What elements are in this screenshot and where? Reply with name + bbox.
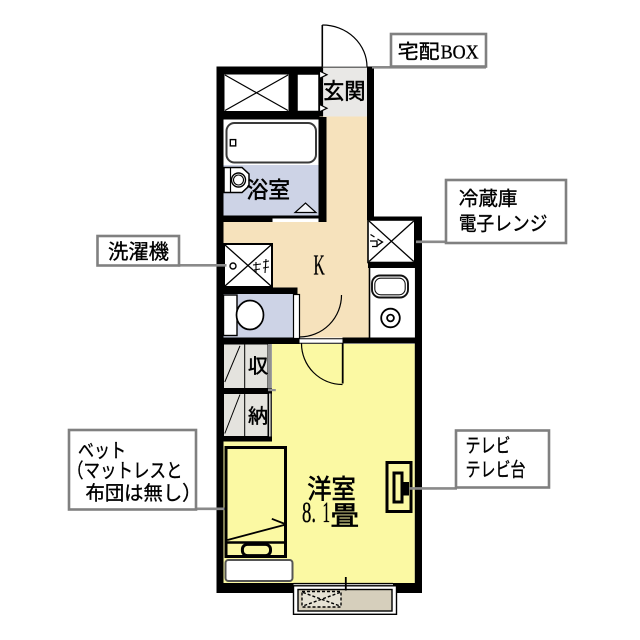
- svg-text:1: 1: [323, 487, 331, 531]
- svg-text:納: 納: [248, 400, 268, 429]
- svg-text:BOX: BOX: [441, 42, 479, 64]
- svg-text:テレビ台: テレビ台: [466, 454, 526, 483]
- svg-text:収: 収: [248, 350, 268, 379]
- svg-text:K: K: [314, 241, 325, 283]
- svg-text:洗濯機: 洗濯機: [108, 236, 169, 266]
- svg-text:電子レンジ: 電子レンジ: [459, 208, 548, 237]
- svg-text:宅配: 宅配: [398, 36, 440, 65]
- svg-text:布団は無し）: 布団は無し）: [86, 477, 202, 506]
- svg-text:玄関: 玄関: [323, 74, 366, 106]
- svg-text:8.: 8.: [302, 487, 316, 531]
- svg-text:畳: 畳: [331, 494, 360, 533]
- svg-text:浴室: 浴室: [247, 171, 291, 205]
